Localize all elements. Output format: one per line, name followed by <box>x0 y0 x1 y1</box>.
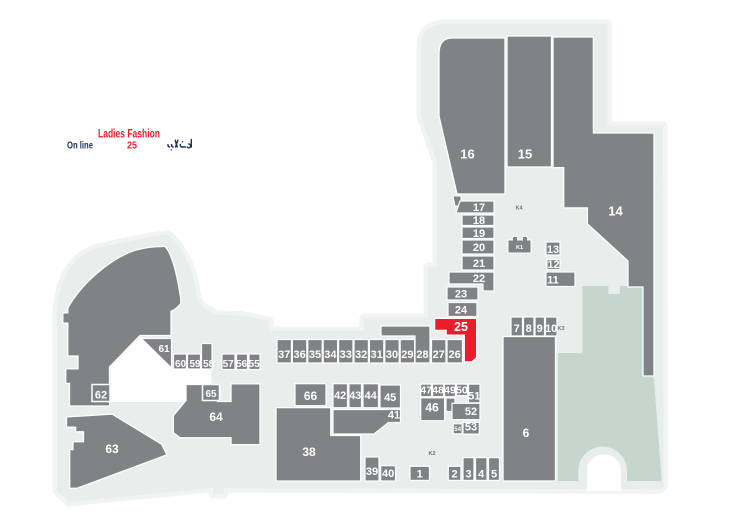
svg-text:40: 40 <box>382 468 394 480</box>
svg-text:64: 64 <box>209 410 223 424</box>
svg-text:60: 60 <box>175 359 187 370</box>
svg-text:22: 22 <box>473 273 485 285</box>
svg-text:49: 49 <box>444 385 456 397</box>
svg-text:6: 6 <box>523 426 530 440</box>
svg-text:On line: On line <box>67 141 93 152</box>
svg-text:59: 59 <box>189 359 201 370</box>
svg-text:15: 15 <box>518 147 532 162</box>
svg-text:47: 47 <box>420 385 432 397</box>
svg-text:26: 26 <box>449 349 461 361</box>
svg-text:7: 7 <box>514 323 520 335</box>
svg-text:56: 56 <box>236 359 248 370</box>
svg-text:17: 17 <box>473 202 485 214</box>
svg-text:8: 8 <box>526 323 532 335</box>
svg-text:23: 23 <box>455 289 467 301</box>
svg-text:51: 51 <box>468 391 480 403</box>
svg-text:11: 11 <box>547 275 559 287</box>
svg-text:62: 62 <box>95 390 107 402</box>
svg-text:13: 13 <box>547 244 559 256</box>
svg-text:54: 54 <box>454 427 461 433</box>
svg-text:55: 55 <box>249 359 261 370</box>
svg-text:12: 12 <box>547 259 559 271</box>
svg-text:1: 1 <box>417 469 423 481</box>
svg-text:25: 25 <box>454 320 468 334</box>
svg-text:20: 20 <box>473 242 485 254</box>
svg-text:33: 33 <box>340 349 352 361</box>
svg-text:4: 4 <box>478 469 485 481</box>
svg-text:14: 14 <box>608 204 623 219</box>
svg-text:57: 57 <box>223 359 235 370</box>
svg-text:43: 43 <box>349 390 361 402</box>
svg-text:65: 65 <box>205 389 217 400</box>
svg-text:32: 32 <box>355 349 367 361</box>
svg-text:21: 21 <box>473 258 485 270</box>
svg-text:16: 16 <box>460 147 474 162</box>
svg-text:35: 35 <box>309 349 321 361</box>
svg-text:2: 2 <box>452 469 458 481</box>
svg-text:31: 31 <box>370 349 382 361</box>
svg-text:63: 63 <box>105 442 119 456</box>
svg-text:10: 10 <box>545 323 557 335</box>
svg-text:45: 45 <box>384 392 396 404</box>
svg-text:48: 48 <box>432 385 444 397</box>
svg-text:41: 41 <box>388 410 400 422</box>
svg-text:9: 9 <box>537 323 543 335</box>
svg-text:24: 24 <box>455 305 468 317</box>
svg-text:42: 42 <box>334 390 346 402</box>
svg-text:19: 19 <box>473 228 485 240</box>
svg-text:K4: K4 <box>515 206 523 212</box>
svg-text:K3: K3 <box>557 326 564 332</box>
svg-text:Ladies Fashion: Ladies Fashion <box>98 129 160 141</box>
svg-text:66: 66 <box>304 389 318 403</box>
svg-text:5: 5 <box>491 469 497 481</box>
svg-text:27: 27 <box>433 349 445 361</box>
svg-text:61: 61 <box>158 344 170 355</box>
svg-text:28: 28 <box>416 349 428 361</box>
svg-text:52: 52 <box>465 406 477 418</box>
svg-text:K2: K2 <box>428 451 435 457</box>
svg-text:50: 50 <box>456 385 468 397</box>
svg-text:34: 34 <box>324 349 337 361</box>
svg-text:58: 58 <box>203 359 215 370</box>
svg-text:30: 30 <box>386 349 398 361</box>
svg-text:37: 37 <box>278 349 290 361</box>
svg-text:18: 18 <box>473 215 485 227</box>
svg-text:3: 3 <box>465 469 471 481</box>
svg-text:44: 44 <box>365 390 378 402</box>
svg-text:25: 25 <box>127 141 137 152</box>
svg-text:K1: K1 <box>516 245 523 251</box>
svg-text:29: 29 <box>401 349 413 361</box>
svg-text:39: 39 <box>366 466 378 478</box>
svg-text:53: 53 <box>465 422 477 434</box>
svg-text:38: 38 <box>302 445 316 459</box>
svg-text:46: 46 <box>425 401 439 415</box>
svg-text:36: 36 <box>293 349 305 361</box>
